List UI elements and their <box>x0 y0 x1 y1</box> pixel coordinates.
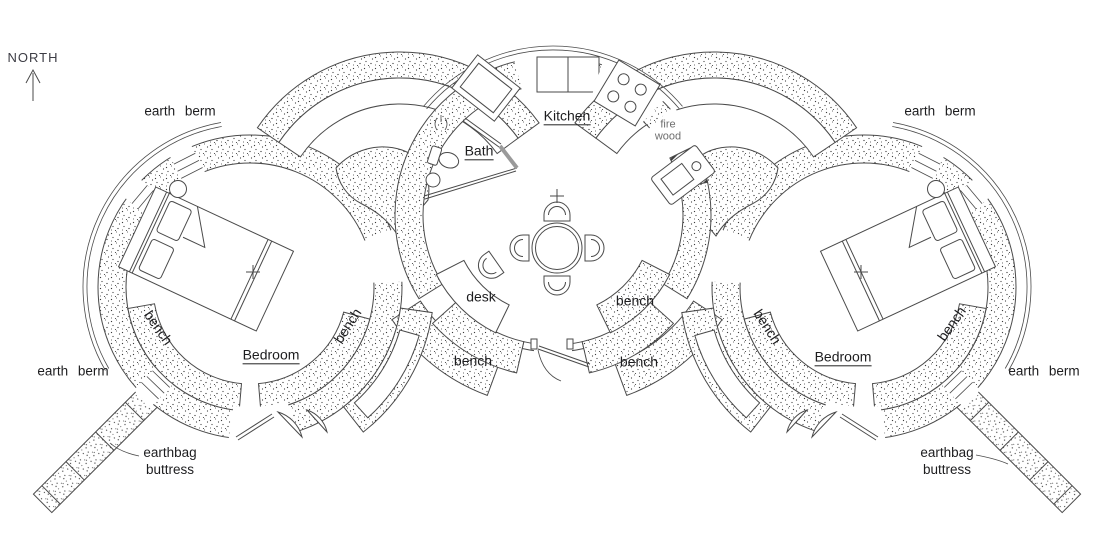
desk-label: desk <box>466 289 496 304</box>
kitchen-sink <box>537 57 568 92</box>
earthbag-buttress-label-right: earthbag buttress <box>920 445 973 479</box>
earth-berm-label-bottom-left: earth berm <box>37 365 108 380</box>
bench-label-bottom-right: bench <box>620 354 658 369</box>
bench-label-bottom-left: bench <box>454 353 492 368</box>
bath-label: Bath <box>465 143 494 158</box>
bench-label-inner-right: bench <box>616 293 654 308</box>
earth-berm-label-top-right: earth berm <box>904 105 975 120</box>
earth-berm-label-bottom-right: earth berm <box>1008 365 1079 380</box>
floor-plan-page: NORTH earth berm earth berm earth berm e… <box>0 0 1100 537</box>
bath-sink <box>426 173 440 187</box>
desk-chair <box>473 251 503 283</box>
buttress-leader-right <box>976 455 1008 464</box>
bedroom-label-left: Bedroom <box>243 347 300 362</box>
center-cross-mark <box>550 189 564 203</box>
kitchen-label: Kitchen <box>544 108 591 123</box>
north-label: NORTH <box>8 51 59 65</box>
bath-door <box>500 146 517 168</box>
north-arrow-icon <box>26 70 40 101</box>
bedroom-label-right: Bedroom <box>815 349 872 364</box>
earthbag-buttress-label-left: earthbag buttress <box>143 445 196 479</box>
fire-wood-label: fire wood <box>655 119 681 142</box>
dining-table <box>473 202 604 295</box>
earth-berm-label-top-left: earth berm <box>144 105 215 120</box>
